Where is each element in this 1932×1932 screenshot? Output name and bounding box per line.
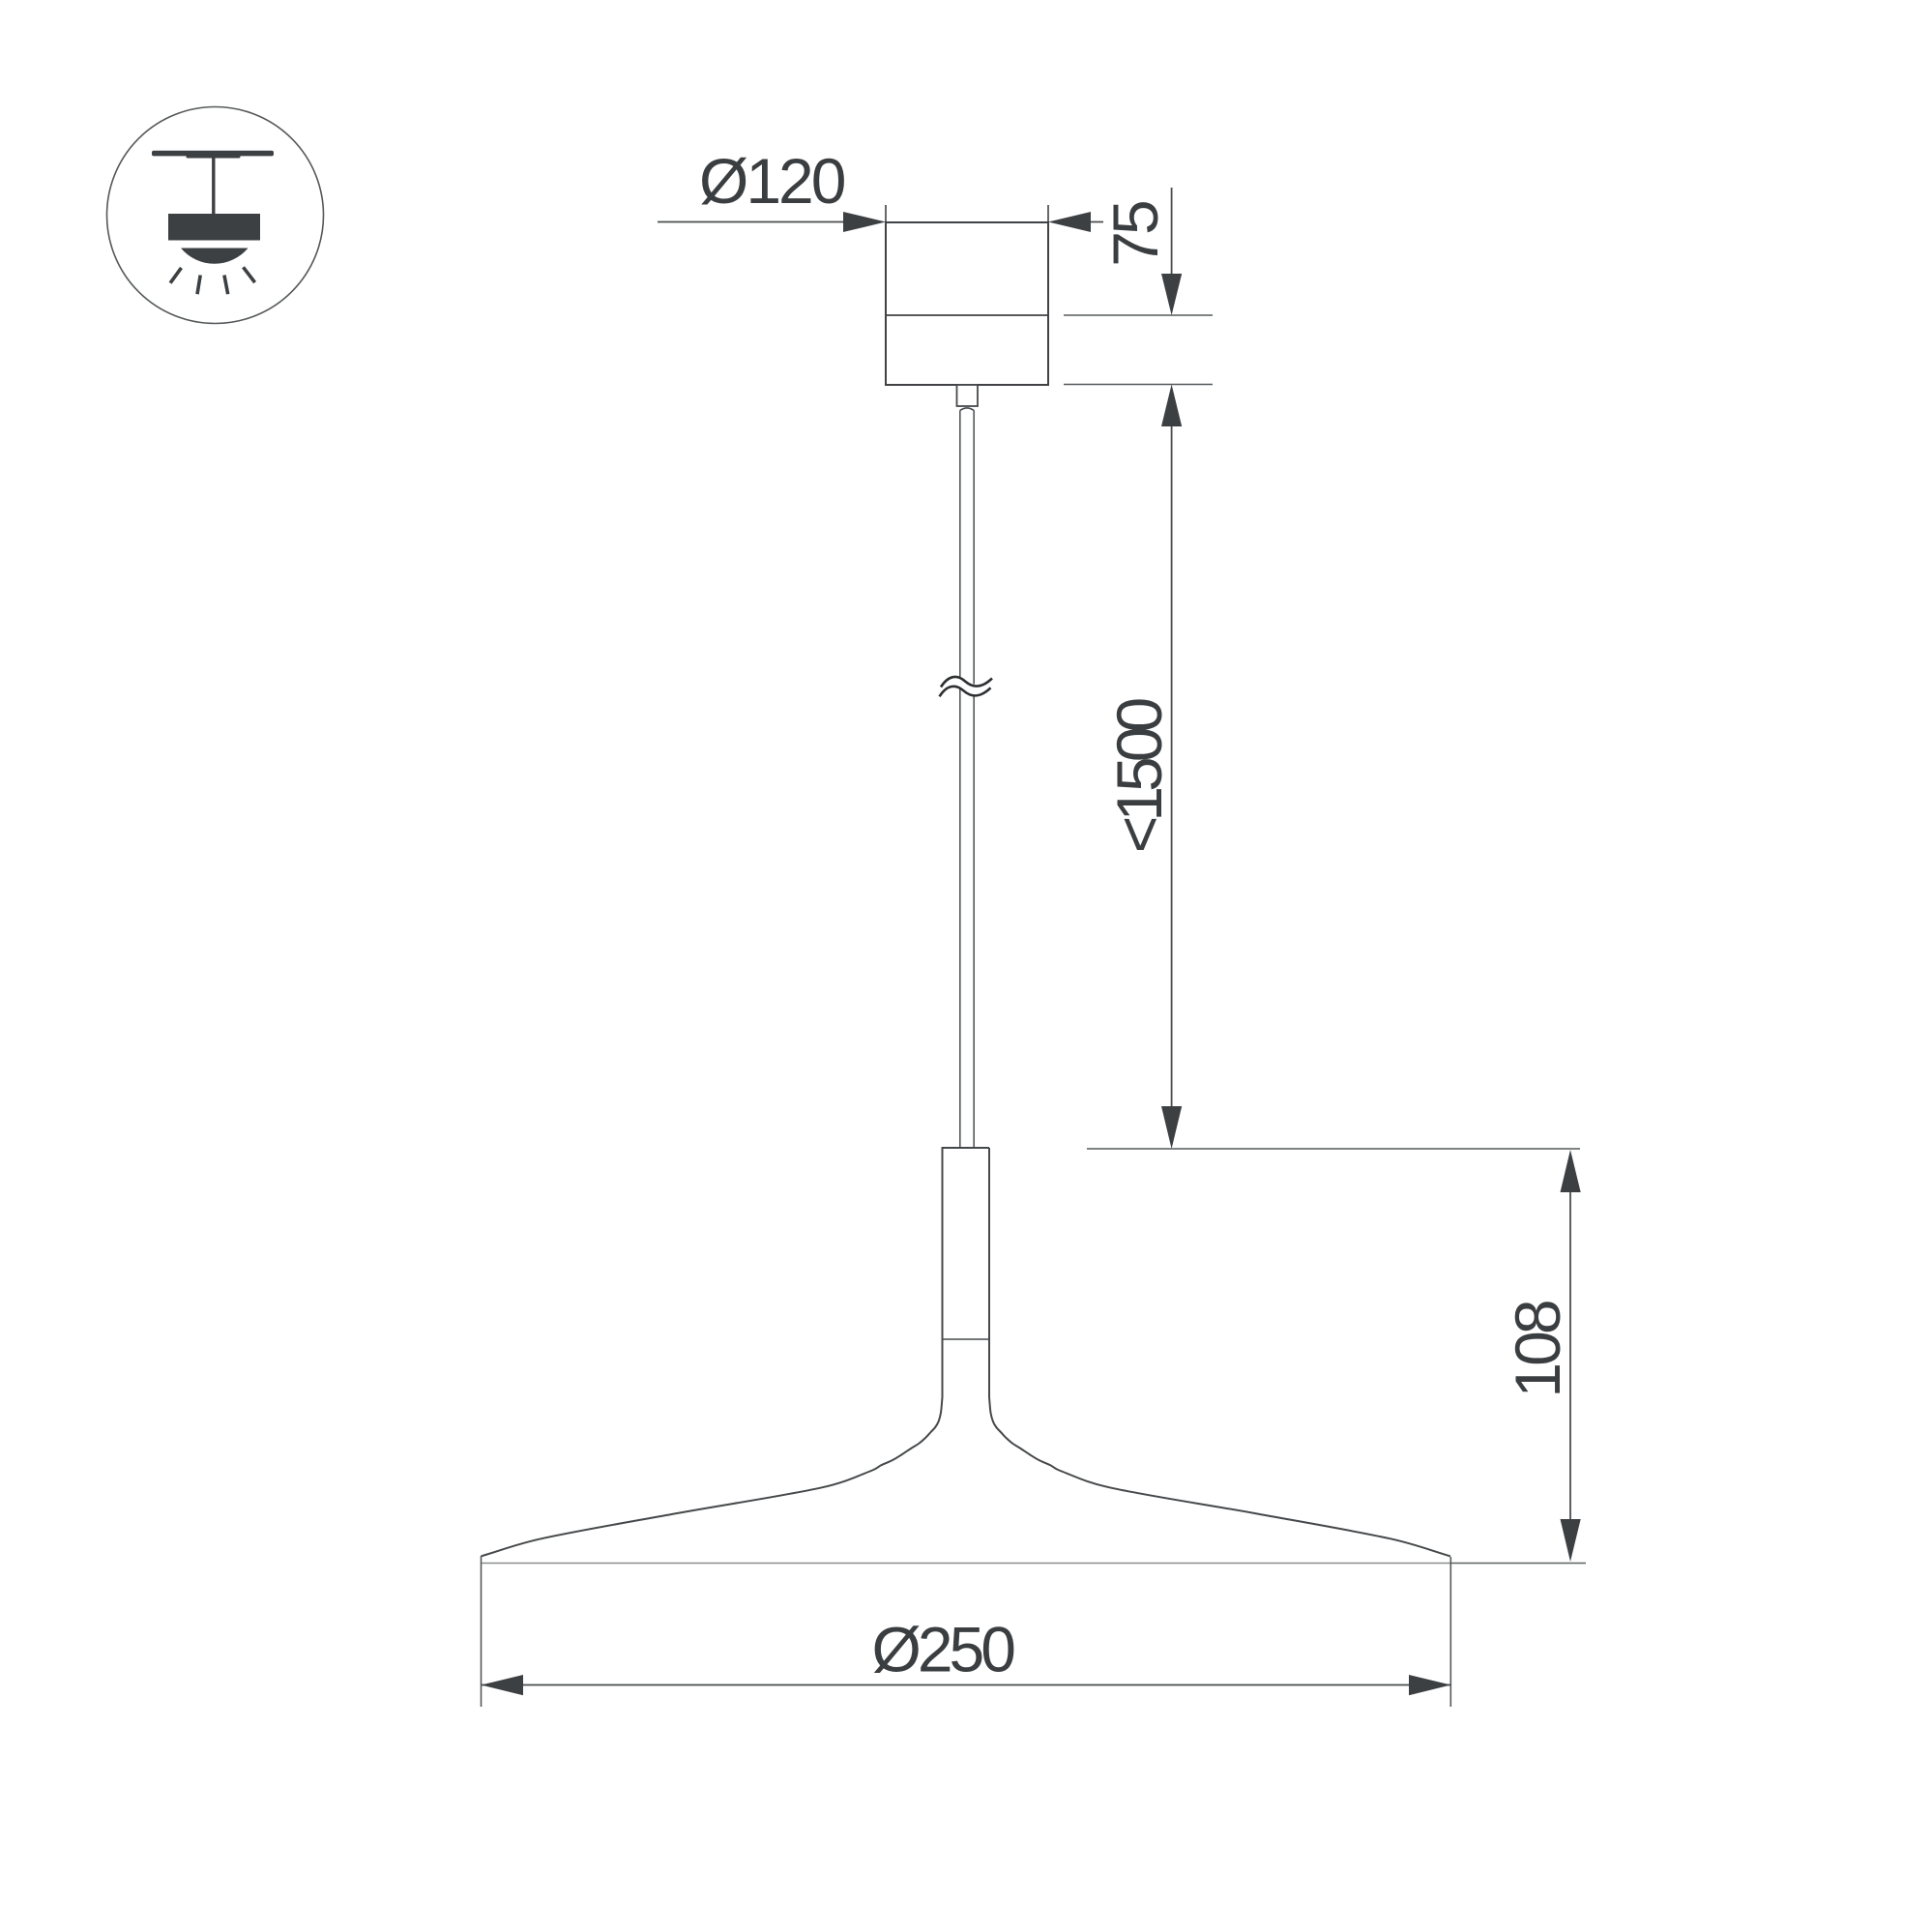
svg-text:75: 75 xyxy=(1099,202,1171,267)
svg-text:<1500: <1500 xyxy=(1103,699,1175,854)
svg-text:Ø250: Ø250 xyxy=(872,1614,1015,1685)
svg-text:Ø120: Ø120 xyxy=(699,145,845,217)
svg-text:108: 108 xyxy=(1502,1302,1573,1397)
